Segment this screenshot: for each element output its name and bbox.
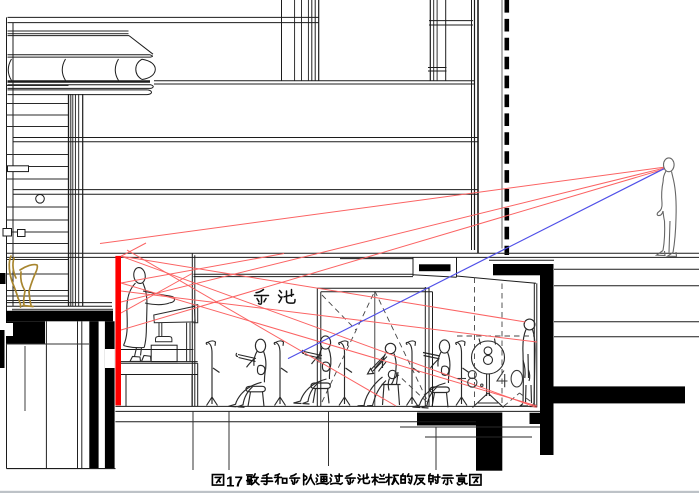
svg-text:17: 17 xyxy=(226,474,243,491)
